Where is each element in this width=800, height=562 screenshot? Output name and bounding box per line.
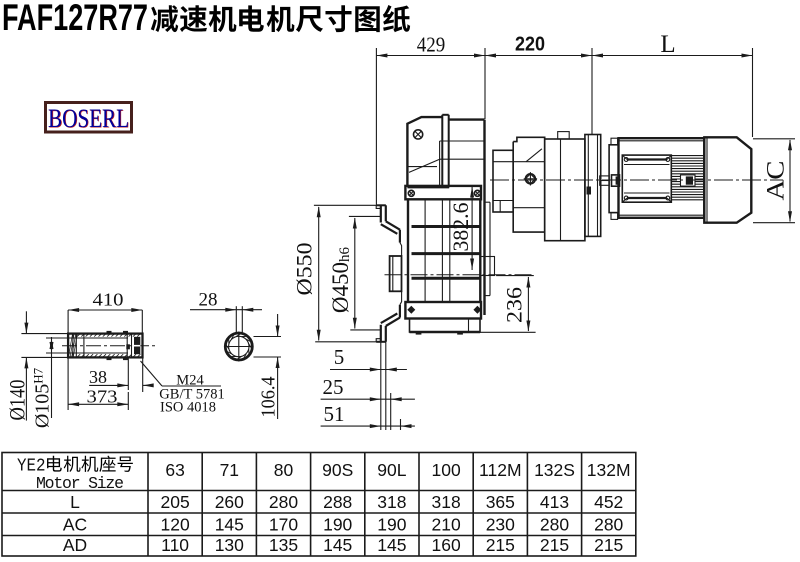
svg-text:318: 318 bbox=[377, 492, 406, 512]
svg-text:132S: 132S bbox=[534, 460, 575, 480]
svg-text:190: 190 bbox=[377, 515, 406, 535]
svg-text:112M: 112M bbox=[479, 460, 521, 480]
svg-text:Motor Size: Motor Size bbox=[36, 474, 124, 493]
svg-text:25: 25 bbox=[323, 375, 344, 399]
svg-text:90S: 90S bbox=[322, 460, 353, 480]
svg-text:71: 71 bbox=[220, 460, 239, 480]
svg-text:28: 28 bbox=[199, 289, 218, 310]
svg-text:215: 215 bbox=[540, 535, 569, 555]
svg-text:Ø550: Ø550 bbox=[292, 243, 317, 296]
svg-text:90L: 90L bbox=[377, 460, 406, 480]
svg-text:BOSERL: BOSERL bbox=[48, 103, 129, 133]
svg-text:220: 220 bbox=[515, 34, 545, 56]
svg-text:Ø140: Ø140 bbox=[5, 380, 30, 421]
svg-text:AC: AC bbox=[63, 515, 87, 535]
svg-text:FAF127R77: FAF127R77 bbox=[2, 0, 148, 38]
svg-text:190: 190 bbox=[323, 515, 352, 535]
svg-text:145: 145 bbox=[323, 535, 352, 555]
svg-text:L: L bbox=[660, 31, 675, 58]
svg-text:318: 318 bbox=[431, 492, 460, 512]
svg-text:230: 230 bbox=[486, 515, 515, 535]
svg-text:210: 210 bbox=[431, 515, 460, 535]
svg-text:51: 51 bbox=[324, 402, 345, 426]
svg-text:205: 205 bbox=[160, 492, 189, 512]
svg-text:236: 236 bbox=[502, 287, 527, 323]
svg-text:373: 373 bbox=[87, 387, 118, 407]
svg-text:5: 5 bbox=[334, 345, 345, 369]
svg-text:280: 280 bbox=[269, 492, 298, 512]
svg-text:365: 365 bbox=[486, 492, 515, 512]
svg-text:ISO 4018: ISO 4018 bbox=[160, 400, 216, 416]
svg-text:132M: 132M bbox=[587, 460, 631, 480]
svg-text:AC: AC bbox=[763, 161, 790, 201]
svg-text:429: 429 bbox=[417, 33, 446, 57]
svg-text:382.6: 382.6 bbox=[448, 203, 473, 252]
svg-text:145: 145 bbox=[377, 535, 406, 555]
svg-text:80: 80 bbox=[274, 460, 294, 480]
svg-text:452: 452 bbox=[594, 492, 623, 512]
svg-text:413: 413 bbox=[540, 492, 569, 512]
svg-text:160: 160 bbox=[431, 535, 460, 555]
svg-text:288: 288 bbox=[323, 492, 352, 512]
svg-text:110: 110 bbox=[161, 535, 189, 555]
svg-text:63: 63 bbox=[165, 460, 184, 480]
svg-text:135: 135 bbox=[269, 535, 298, 555]
svg-text:280: 280 bbox=[540, 515, 569, 535]
svg-text:260: 260 bbox=[215, 492, 244, 512]
svg-text:130: 130 bbox=[215, 535, 244, 555]
svg-text:215: 215 bbox=[594, 535, 623, 555]
svg-text:120: 120 bbox=[160, 515, 189, 535]
svg-text:145: 145 bbox=[215, 515, 244, 535]
svg-text:100: 100 bbox=[431, 460, 460, 480]
svg-text:AD: AD bbox=[63, 535, 87, 555]
svg-text:280: 280 bbox=[594, 515, 623, 535]
svg-text:L: L bbox=[70, 492, 80, 512]
svg-text:410: 410 bbox=[93, 290, 124, 310]
svg-text:38: 38 bbox=[89, 367, 107, 387]
svg-text:170: 170 bbox=[269, 515, 298, 535]
svg-text:106.4: 106.4 bbox=[258, 377, 280, 418]
svg-text:215: 215 bbox=[486, 535, 515, 555]
